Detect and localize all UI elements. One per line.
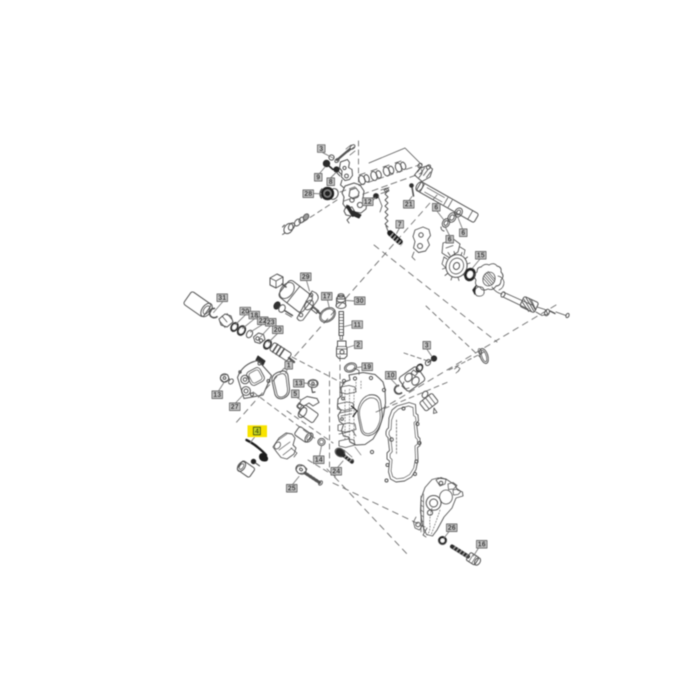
svg-text:10: 10 xyxy=(387,373,395,380)
svg-text:17: 17 xyxy=(323,294,331,301)
svg-text:9: 9 xyxy=(316,175,320,182)
svg-text:21: 21 xyxy=(405,202,413,209)
svg-text:15: 15 xyxy=(477,253,485,260)
svg-text:8: 8 xyxy=(329,179,333,186)
svg-text:16: 16 xyxy=(478,542,486,549)
svg-text:24: 24 xyxy=(332,469,340,476)
svg-text:5: 5 xyxy=(293,391,297,398)
svg-text:6: 6 xyxy=(434,205,438,212)
svg-text:30: 30 xyxy=(356,298,364,305)
svg-text:27: 27 xyxy=(231,404,239,411)
svg-text:25: 25 xyxy=(288,486,296,493)
svg-text:6: 6 xyxy=(461,230,465,237)
svg-text:6: 6 xyxy=(448,237,452,244)
svg-text:11: 11 xyxy=(353,322,361,329)
svg-text:29: 29 xyxy=(302,274,310,281)
svg-text:14: 14 xyxy=(315,457,323,464)
svg-text:2: 2 xyxy=(356,342,360,349)
svg-text:1: 1 xyxy=(287,363,291,370)
svg-text:23: 23 xyxy=(267,320,275,327)
svg-text:7: 7 xyxy=(398,222,402,229)
svg-text:20: 20 xyxy=(274,327,282,334)
svg-text:4: 4 xyxy=(255,429,259,436)
svg-text:22: 22 xyxy=(259,318,267,325)
svg-text:12: 12 xyxy=(364,199,372,206)
svg-text:26: 26 xyxy=(448,525,456,532)
svg-text:19: 19 xyxy=(363,364,371,371)
svg-text:3: 3 xyxy=(425,343,429,350)
svg-text:13: 13 xyxy=(213,392,221,399)
svg-text:20: 20 xyxy=(241,308,249,315)
svg-text:13: 13 xyxy=(295,381,303,388)
svg-text:28: 28 xyxy=(304,191,312,198)
svg-text:18: 18 xyxy=(250,312,258,319)
svg-text:31: 31 xyxy=(218,295,226,302)
svg-text:3: 3 xyxy=(319,146,323,153)
